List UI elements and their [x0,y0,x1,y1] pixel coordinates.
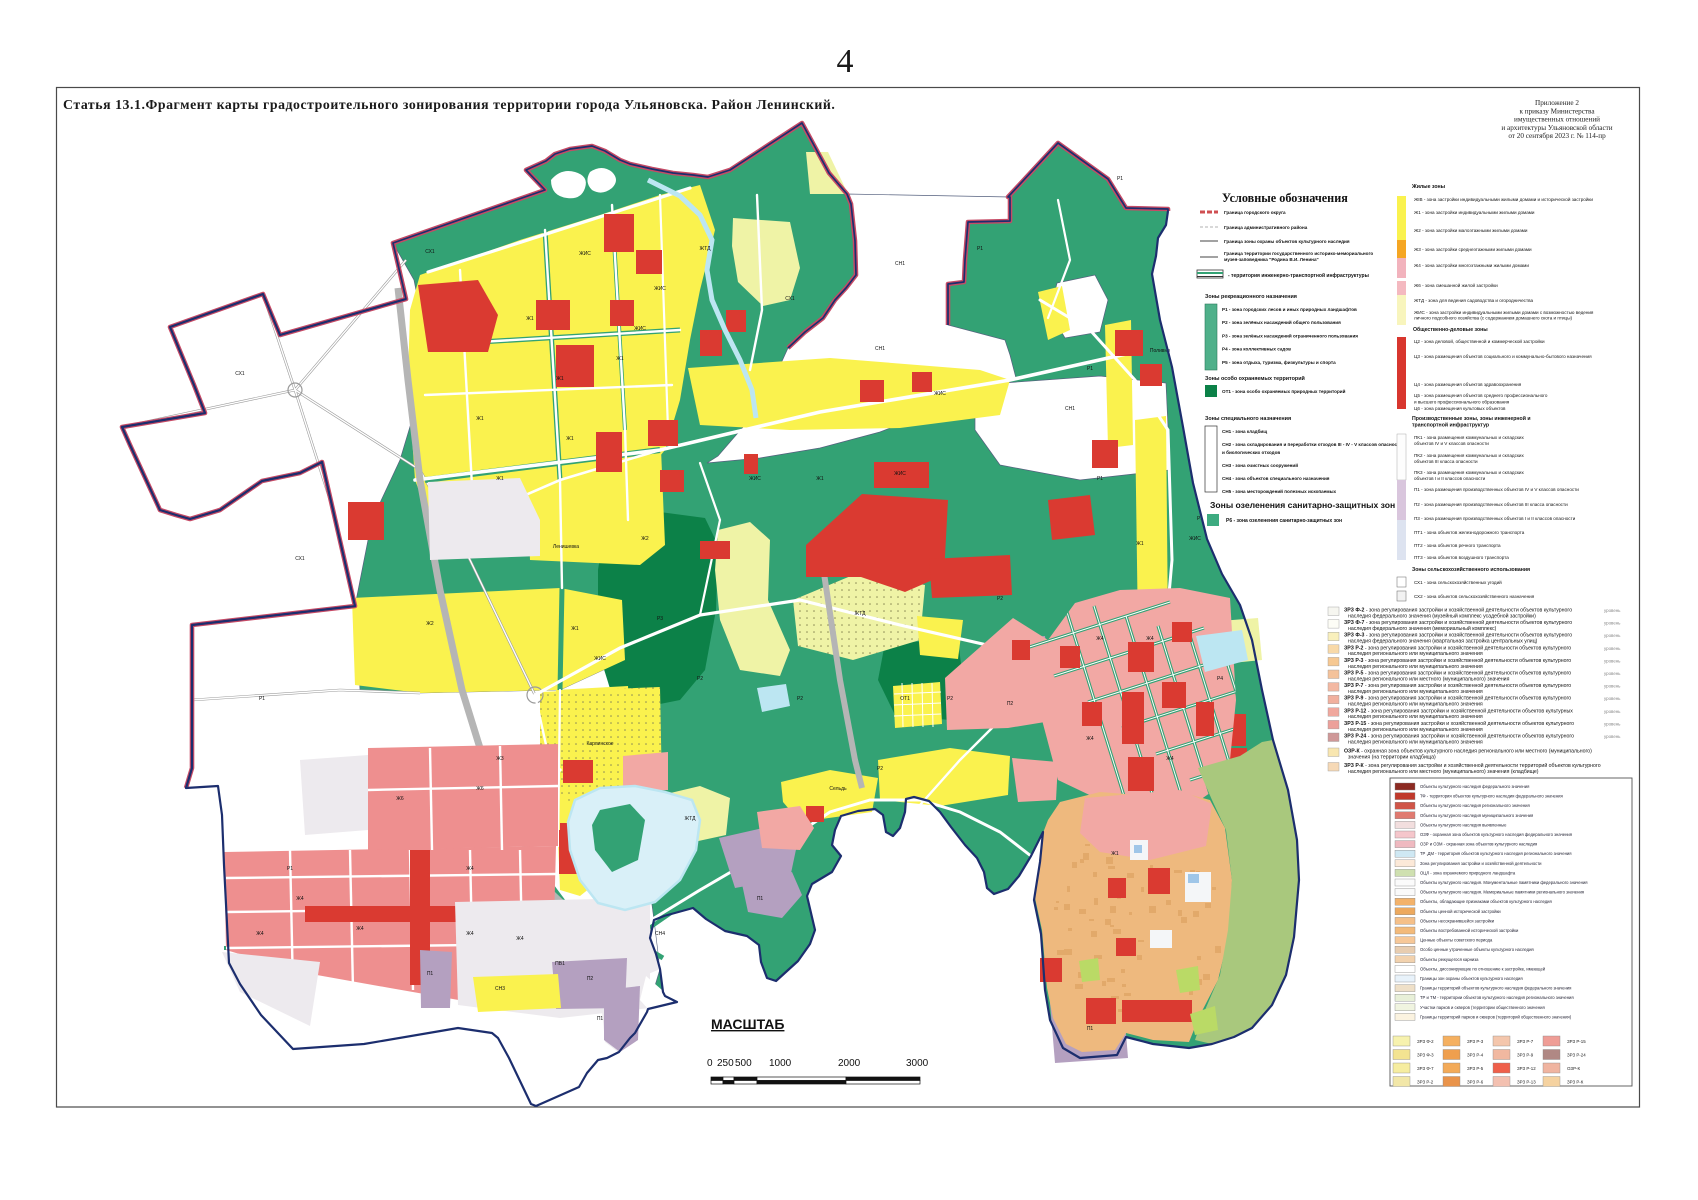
svg-text:П2 - зона размещения производс: П2 - зона размещения производственных об… [1414,502,1568,507]
svg-text:Ж4: Ж4 [466,866,474,872]
svg-text:Ж4: Ж4 [296,896,304,902]
svg-text:наследия федерального значения: наследия федерального значения (музейный… [1348,612,1536,619]
svg-text:ЗРЗ Р-К - зона регулирования з: ЗРЗ Р-К - зона регулирования застройки и… [1344,762,1601,769]
svg-text:Р3 - зона зелёных насаждений о: Р3 - зона зелёных насаждений ограниченно… [1222,332,1358,338]
svg-text:Ж1: Ж1 [496,476,504,482]
svg-text:П1: П1 [757,896,764,902]
svg-text:П2: П2 [587,976,594,982]
svg-text:П2: П2 [1007,701,1014,707]
svg-text:ЗРЗ Ф-7: ЗРЗ Ф-7 [1417,1066,1434,1071]
svg-text:ЖИС: ЖИС [594,656,606,662]
svg-text:и архитектуры Ульяновской обла: и архитектуры Ульяновской области [1501,124,1612,132]
svg-text:Границы территорий парков и ск: Границы территорий парков и скверов (тер… [1420,1014,1572,1019]
svg-text:Объекты культурного наследия.: Объекты культурного наследия. Монументал… [1420,880,1588,885]
svg-text:ЗРЗ Р-13: ЗРЗ Р-13 [1517,1080,1536,1085]
svg-text:объектов III класса опасности: объектов III класса опасности [1414,459,1478,464]
svg-text:Зоны рекреационного назначения: Зоны рекреационного назначения [1205,294,1297,300]
svg-text:Объекты, обладающие признаками: Объекты, обладающие признаками объектов … [1420,899,1552,904]
svg-text:Объекты культурного наследия м: Объекты культурного наследия муниципальн… [1420,813,1533,818]
svg-text:наследия регионального или мес: наследия регионального или местного (мун… [1348,676,1510,682]
svg-text:ОЦЛ - зона охраняемого природн: ОЦЛ - зона охраняемого природного ландша… [1420,870,1516,875]
svg-text:ПТ3 - зона объектов воздушного: ПТ3 - зона объектов воздушного транспорт… [1414,555,1509,560]
svg-text:ЖТД: ЖТД [685,816,697,822]
svg-text:ПК2 - зона размещения коммунал: ПК2 - зона размещения коммунальных и скл… [1414,453,1524,458]
svg-text:0: 0 [707,1058,713,1069]
svg-text:ПТ1 - зона объектов железнодор: ПТ1 - зона объектов железнодорожного тра… [1414,530,1525,535]
svg-text:СХ1: СХ1 [425,249,435,255]
svg-text:1000: 1000 [769,1058,792,1069]
svg-text:Производственные зоны, зоны ин: Производственные зоны, зоны инженерной и [1412,415,1531,422]
svg-text:СХ1: СХ1 [235,371,245,377]
svg-text:ЗРЗ Р-6: ЗРЗ Р-6 [1467,1080,1484,1085]
svg-text:П1 - зона размещения производс: П1 - зона размещения производственных об… [1414,487,1579,492]
svg-text:личного подсобного хозяйства (: личного подсобного хозяйства (с содержан… [1414,315,1572,321]
svg-text:Граница городского округа: Граница городского округа [1224,210,1286,215]
svg-text:наследия регионального или мес: наследия регионального или местного (мун… [1348,769,1539,775]
svg-text:Ж3 - зона застройки среднеэта: Ж3 - зона застройки среднеэтажными жилым… [1414,246,1532,252]
svg-text:от 20 сентября 2023 г. № 114-п: от 20 сентября 2023 г. № 114-пр [1508,132,1606,140]
svg-text:Р5 - зона отдыха, туризма, физ: Р5 - зона отдыха, туризма, физкультуры и… [1222,359,1336,365]
svg-text:Жилые зоны: Жилые зоны [1411,184,1446,190]
svg-text:Зоны специального назначения: Зоны специального назначения [1205,416,1291,422]
svg-text:Ценные объекты советского пери: Ценные объекты советского периода [1420,938,1493,943]
svg-text:Карлинское: Карлинское [586,741,613,747]
svg-text:объектов I и II классов опасн: объектов I и II классов опасности [1414,476,1486,481]
svg-text:Ж4: Ж4 [466,931,474,937]
svg-text:Ж1: Ж1 [571,626,579,632]
svg-text:СН1: СН1 [1065,406,1075,412]
svg-text:ПВ1: ПВ1 [555,961,565,967]
svg-text:Статья 13.1.Фрагмент карты гра: Статья 13.1.Фрагмент карты градостроител… [63,97,835,112]
svg-text:Ленишевка: Ленишевка [553,544,579,550]
svg-text:ЖТД - зона для ведения садово: ЖТД - зона для ведения садоводства и ого… [1414,298,1533,303]
svg-text:3000: 3000 [906,1058,929,1069]
svg-text:Ц3 - зона размещения объекто: Ц3 - зона размещения объектов социальног… [1414,354,1592,359]
svg-text:Ж1: Ж1 [1136,541,1144,547]
svg-text:ЗРЗ Ф-2: ЗРЗ Ф-2 [1417,1039,1434,1044]
svg-text:ОТ1 - зона особо охраняемых пр: ОТ1 - зона особо охраняемых природных те… [1222,388,1346,394]
svg-text:Р6 - зона озеленения санитарно: Р6 - зона озеленения санитарно-защитных … [1226,518,1342,524]
svg-text:объектов IV и V классов опасн: объектов IV и V классов опасности [1414,441,1489,446]
svg-text:ОЗФ - охранная зона объектов к: ОЗФ - охранная зона объектов культурного… [1420,832,1572,837]
svg-text:П1: П1 [1087,1026,1094,1032]
svg-text:ТР ,ДМ - территория объектов к: ТР ,ДМ - территория объектов культурного… [1420,851,1572,856]
svg-text:уровень: уровень [1604,646,1621,651]
svg-text:ЖТД: ЖТД [700,246,712,252]
svg-text:Ж1: Ж1 [526,316,534,322]
svg-text:Р2: Р2 [997,596,1003,602]
svg-text:Ж2: Ж2 [426,621,434,627]
svg-text:и биологических отходов: и биологических отходов [1222,449,1280,455]
svg-text:Ц2 - зона деловой, обществен: Ц2 - зона деловой, общественной и коммер… [1414,338,1545,344]
svg-text:ОТ1: ОТ1 [900,696,910,702]
svg-text:Ж3: Ж3 [496,756,504,762]
svg-text:ЗРЗ Р-5: ЗРЗ Р-5 [1467,1066,1484,1071]
svg-text:уровень: уровень [1604,684,1621,689]
svg-text:ЗРЗ Р-3: ЗРЗ Р-3 [1467,1039,1484,1044]
svg-text:уровень: уровень [1604,709,1621,714]
svg-text:Граница зоны охраны объектов к: Граница зоны охраны объектов культурного… [1224,238,1350,244]
svg-text:ЖИС - зона застройки индивидуа: ЖИС - зона застройки индивидуальными жил… [1414,309,1594,315]
svg-text:уровень: уровень [1604,633,1621,638]
svg-text:Сельдь: Сельдь [829,786,847,792]
svg-text:СХ1 - зона сельскохозяйственны: СХ1 - зона сельскохозяйственных угодий [1414,579,1502,585]
svg-text:ЗРЗ Р-24: ЗРЗ Р-24 [1567,1053,1586,1058]
svg-text:Ц4 - зона размещения объектов: Ц4 - зона размещения объектов здравоохра… [1414,382,1522,387]
svg-text:транспортной инфраструктур: транспортной инфраструктур [1412,422,1489,429]
svg-text:Р2: Р2 [797,696,803,702]
svg-text:Ж4: Ж4 [1146,636,1154,642]
svg-text:СН1 - зона кладбищ: СН1 - зона кладбищ [1222,428,1267,434]
svg-text:Р1: Р1 [1117,176,1123,182]
svg-text:Ж4: Ж4 [516,936,524,942]
svg-text:Ж1: Ж1 [616,356,624,362]
svg-text:ЗРЗ Р-7: ЗРЗ Р-7 [1517,1039,1534,1044]
svg-text:наследия федерального значения: наследия федерального значения (кварталь… [1348,638,1538,645]
svg-text:СН2 - зона складирования и пер: СН2 - зона складирования и переработки о… [1222,441,1402,447]
svg-text:ЗРЗ Ф-3: ЗРЗ Ф-3 [1417,1053,1434,1058]
svg-text:ПК1 - зона размещения коммунал: ПК1 - зона размещения коммунальных и скл… [1414,435,1524,440]
svg-text:Особо ценные утраченные объект: Особо ценные утраченные объекты культурн… [1420,947,1534,952]
svg-text:250: 250 [717,1058,734,1069]
svg-text:ЖИС: ЖИС [934,391,946,397]
svg-text:Ж4: Ж4 [1166,756,1174,762]
svg-text:Условные обозначения: Условные обозначения [1222,191,1348,205]
svg-text:ПТ2 - зона объектов речного тр: ПТ2 - зона объектов речного транспорта [1414,543,1501,548]
svg-text:Объекты ценной исторической з: Объекты ценной исторической застройки [1420,909,1501,914]
svg-text:ЖИС: ЖИС [579,251,591,257]
svg-text:СН5 - зона месторождений полез: СН5 - зона месторождений полезных ископа… [1222,488,1337,494]
svg-text:наследия регионального или мун: наследия регионального или муниципальног… [1348,702,1483,708]
svg-text:наследия федерального значения: наследия федерального значения (мемориал… [1348,625,1497,632]
svg-text:уровень: уровень [1604,721,1621,726]
svg-text:наследия регионального или мун: наследия регионального или муниципальног… [1348,727,1483,733]
svg-text:2000: 2000 [838,1058,861,1069]
svg-text:500: 500 [735,1058,752,1069]
svg-text:значения (на территории кладби: значения (на территории кладбища) [1348,755,1436,761]
svg-text:Границы территорий объектов ку: Границы территорий объектов культурного … [1420,986,1571,991]
svg-text:наследия регионального или мун: наследия регионального или муниципальног… [1348,689,1483,695]
svg-text:Объекты культурного наследия ф: Объекты культурного наследия федеральног… [1420,784,1529,789]
svg-text:Р1: Р1 [259,696,265,702]
svg-text:Ж4: Ж4 [256,931,264,937]
svg-text:Р1 - зона городских лесов и ин: Р1 - зона городских лесов и иных природн… [1222,306,1357,312]
svg-text:П1: П1 [597,1016,604,1022]
svg-text:уровень: уровень [1604,658,1621,663]
svg-text:Ж6: Ж6 [396,796,404,802]
svg-text:Р2: Р2 [697,676,703,682]
svg-text:СН4 - зона объектов специально: СН4 - зона объектов специального назначе… [1222,475,1330,481]
svg-text:ЖИС: ЖИС [894,471,906,477]
svg-text:и высшего профессионального об: и высшего профессионального образования [1414,400,1510,405]
svg-text:музея-заповедника "Родина В.И.: музея-заповедника "Родина В.И. Ленина" [1224,257,1319,262]
svg-text:Ж4: Ж4 [356,926,364,932]
svg-text:ЖИС: ЖИС [749,476,761,482]
svg-text:СН3: СН3 [495,986,505,992]
svg-text:Ж2: Ж2 [641,536,649,542]
svg-text:Ж1 - зона застройки индивидуа: Ж1 - зона застройки индивидуальными жилы… [1414,209,1535,215]
svg-text:имущественных отношений: имущественных отношений [1514,116,1600,124]
svg-text:Зоны особо охраняемых территор: Зоны особо охраняемых территорий [1205,375,1305,382]
svg-text:уровень: уровень [1604,608,1621,613]
svg-text:СН1: СН1 [895,261,905,267]
svg-text:Р1: Р1 [977,246,983,252]
svg-text:Общественно-деловые зоны: Общественно-деловые зоны [1413,326,1488,333]
svg-text:ОЗР-К: ОЗР-К [1567,1066,1580,1071]
svg-text:Зоны озеленения санитарно-защи: Зоны озеленения санитарно-защитных зон [1210,500,1395,510]
svg-text:к приказу Министерства: к приказу Министерства [1519,107,1595,115]
svg-text:ЖИС: ЖИС [1189,536,1201,542]
svg-text:СН1: СН1 [875,346,885,352]
svg-text:СН3 - зона очистных сооружений: СН3 - зона очистных сооружений [1222,462,1298,468]
svg-text:Зона регулирования застройки и: Зона регулирования застройки и хозяйстве… [1420,861,1542,866]
svg-text:Ж6 - зона смешанной жилой заст: Ж6 - зона смешанной жилой застройки [1414,282,1498,288]
svg-text:Ж4 - зона застройки многоэтаж: Ж4 - зона застройки многоэтажными жилыми… [1414,262,1529,268]
svg-text:Ж2 - зона застройки малоэтажн: Ж2 - зона застройки малоэтажными жилыми … [1414,227,1528,233]
svg-text:Р4 - зона коллективных садов: Р4 - зона коллективных садов [1222,347,1291,352]
svg-text:СХ1: СХ1 [785,296,795,302]
svg-text:Р1: Р1 [1097,476,1103,482]
svg-text:МАСШТАБ: МАСШТАБ [711,1016,784,1032]
svg-text:Ж1: Ж1 [1111,851,1119,857]
svg-text:Ж6: Ж6 [476,786,484,792]
svg-text:П1: П1 [427,971,434,977]
svg-text:Объекты востребованной историч: Объекты востребованной исторической заст… [1420,928,1519,933]
svg-text:уровень: уровень [1604,696,1621,701]
svg-text:ЗРЗ Р-К: ЗРЗ Р-К [1567,1080,1584,1085]
svg-text:ЖІВ - зона застройки индивидуа: ЖІВ - зона застройки индивидуальными жил… [1414,196,1593,202]
svg-text:наследия регионального или мун: наследия регионального или муниципальног… [1348,651,1483,657]
svg-text:Р1: Р1 [1087,366,1093,372]
svg-text:СН4: СН4 [655,931,665,937]
svg-text:ТФ - территория объектов культ: ТФ - территория объектов культурного нас… [1420,794,1563,799]
svg-text:ОЗР и ОЗМ - охранная зона объе: ОЗР и ОЗМ - охранная зона объектов культ… [1420,842,1537,847]
svg-text:Приложение 2: Приложение 2 [1535,99,1579,107]
svg-text:СХ2 - зона объектов сельскохоз: СХ2 - зона объектов сельскохозяйственног… [1414,593,1535,599]
svg-text:Р3: Р3 [657,616,663,622]
svg-text:Ж1: Ж1 [556,376,564,382]
svg-text:4: 4 [837,43,854,80]
svg-text:ЖТД: ЖТД [855,611,867,617]
svg-text:Р2: Р2 [877,766,883,772]
svg-text:ПК3 - зона размещения коммунал: ПК3 - зона размещения коммунальных и скл… [1414,470,1524,475]
svg-text:СХ1: СХ1 [295,556,305,562]
svg-text:ЗРЗ Р-12: ЗРЗ Р-12 [1517,1066,1536,1071]
svg-text:Зоны сельскохозяйственного исп: Зоны сельскохозяйственного использования [1412,566,1530,573]
svg-text:Ж1: Ж1 [566,436,574,442]
svg-text:Объекты, диссонирующие по отно: Объекты, диссонирующие по отношению к за… [1420,966,1546,971]
svg-text:Р2: Р2 [947,696,953,702]
svg-text:ЖИС: ЖИС [654,286,666,292]
svg-text:Объекты культурного наследия.: Объекты культурного наследия. Мемориальн… [1420,890,1584,895]
svg-text:ЖИС: ЖИС [634,326,646,332]
svg-text:Р2 - зона зелёных насаждений о: Р2 - зона зелёных насаждений общего поль… [1222,319,1341,325]
svg-text:Объекты режущегося карниза: Объекты режущегося карниза [1420,957,1479,962]
svg-text:ТР и ТМ - территории объектов: ТР и ТМ - территории объектов культурног… [1420,995,1574,1000]
svg-text:Объекты культурного наследия р: Объекты культурного наследия регионально… [1420,803,1530,808]
svg-text:Р1: Р1 [287,866,293,872]
svg-text:ЗРЗ Р-4: ЗРЗ Р-4 [1467,1053,1484,1058]
svg-text:ЗРЗ Р-9: ЗРЗ Р-9 [1517,1053,1534,1058]
svg-text:уровень: уровень [1604,671,1621,676]
svg-text:уровень: уровень [1604,621,1621,626]
svg-text:Ц5 - зона размещения объектов: Ц5 - зона размещения объектов среднего п… [1414,393,1548,398]
svg-text:Ж1: Ж1 [816,476,824,482]
svg-text:Ц6 - зона размещения культовых: Ц6 - зона размещения культовых объектов [1414,406,1506,411]
svg-text:Границы зон охраны объектов ку: Границы зон охраны объектов культурного … [1420,976,1523,981]
svg-text:П3 - зона размещения производс: П3 - зона размещения производственных об… [1414,516,1576,521]
svg-text:уровень: уровень [1604,734,1621,739]
svg-text:Ж4: Ж4 [1086,736,1094,742]
svg-text:Объекты несохранившейся застро: Объекты несохранившейся застройки [1420,918,1495,923]
svg-text:Р4: Р4 [1217,676,1223,682]
svg-text:наследия регионального или мун: наследия регионального или муниципальног… [1348,739,1483,745]
svg-text:ЗРЗ Р-2: ЗРЗ Р-2 [1417,1080,1434,1085]
svg-text:Граница территории государстве: Граница территории государственного исто… [1224,251,1373,256]
svg-text:наследия регионального или мун: наследия регионального или муниципальног… [1348,664,1483,670]
svg-text:наследия регионального или мун: наследия регионального или муниципальног… [1348,714,1483,720]
svg-text:Объекты культурного наследия: Объекты культурного наследия выявленные [1420,822,1507,827]
svg-text:Ж4: Ж4 [1096,636,1104,642]
svg-text:Граница административного райо: Граница административного района [1224,224,1308,230]
svg-text:- территория инженерно-транспо: - территория инженерно-транспортной инфр… [1228,272,1369,279]
svg-text:Ж1: Ж1 [476,416,484,422]
svg-text:Участки парков и скверов (терр: Участки парков и скверов (территории общ… [1420,1005,1545,1010]
svg-text:ЗРЗ Р-15: ЗРЗ Р-15 [1567,1039,1586,1044]
